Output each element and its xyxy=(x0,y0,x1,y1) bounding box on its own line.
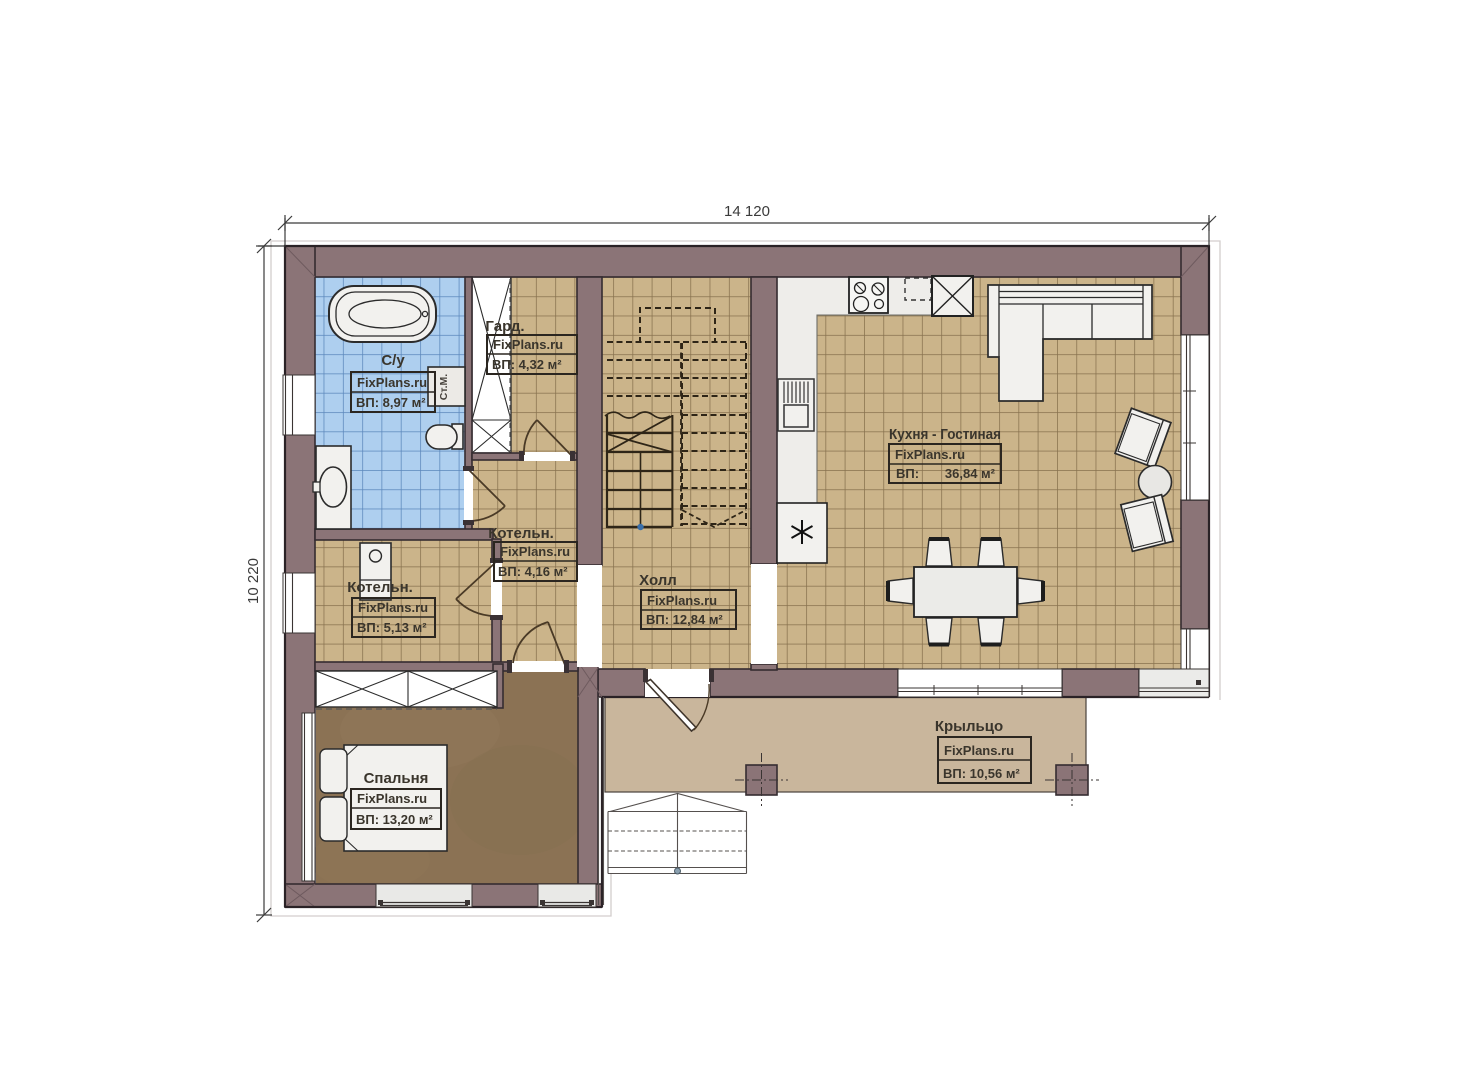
svg-text:ВП: 8,97 м²: ВП: 8,97 м² xyxy=(356,395,426,410)
svg-text:Котельн.: Котельн. xyxy=(347,579,413,596)
svg-text:ВП: 4,16 м²: ВП: 4,16 м² xyxy=(498,564,568,579)
svg-text:FixPlans.ru: FixPlans.ru xyxy=(647,593,717,608)
svg-text:FixPlans.ru: FixPlans.ru xyxy=(500,544,570,559)
svg-text:Крыльцо: Крыльцо xyxy=(935,718,1003,735)
svg-text:ВП: 5,13 м²: ВП: 5,13 м² xyxy=(357,620,427,635)
svg-text:FixPlans.ru: FixPlans.ru xyxy=(895,447,965,462)
svg-text:ВП:: ВП: xyxy=(896,466,919,481)
svg-text:ВП: 12,84 м²: ВП: 12,84 м² xyxy=(646,612,723,627)
svg-text:FixPlans.ru: FixPlans.ru xyxy=(944,743,1014,758)
svg-text:FixPlans.ru: FixPlans.ru xyxy=(493,337,563,352)
svg-text:36,84 м²: 36,84 м² xyxy=(945,466,996,481)
svg-text:Ст.М.: Ст.М. xyxy=(438,374,450,400)
svg-text:FixPlans.ru: FixPlans.ru xyxy=(358,600,428,615)
svg-text:Гард.: Гард. xyxy=(485,318,524,335)
svg-text:10 220: 10 220 xyxy=(245,558,262,604)
svg-text:Спальня: Спальня xyxy=(364,770,429,787)
svg-text:С/у: С/у xyxy=(381,352,405,369)
svg-text:FixPlans.ru: FixPlans.ru xyxy=(357,791,427,806)
svg-text:14 120: 14 120 xyxy=(724,203,770,220)
svg-text:FixPlans.ru: FixPlans.ru xyxy=(357,375,427,390)
svg-text:Котельн.: Котельн. xyxy=(488,525,554,542)
svg-text:ВП: 4,32 м²: ВП: 4,32 м² xyxy=(492,357,562,372)
svg-text:Холл: Холл xyxy=(639,572,677,589)
svg-text:ВП: 13,20 м²: ВП: 13,20 м² xyxy=(356,812,433,827)
svg-text:ВП: 10,56 м²: ВП: 10,56 м² xyxy=(943,766,1020,781)
svg-text:Кухня - Гостиная: Кухня - Гостиная xyxy=(889,426,1001,443)
